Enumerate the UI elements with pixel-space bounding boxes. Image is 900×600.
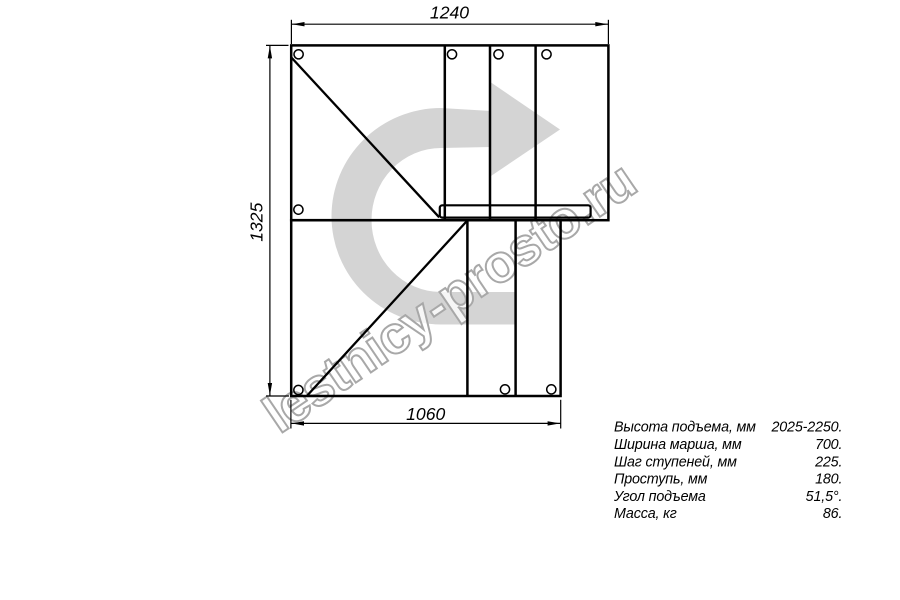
svg-text:2025-2250.: 2025-2250.	[770, 420, 842, 436]
svg-text:86.: 86.	[823, 506, 842, 522]
svg-text:1060: 1060	[406, 404, 445, 424]
svg-text:Проступь, мм: Проступь, мм	[614, 472, 708, 488]
svg-text:Масса, кг: Масса, кг	[614, 506, 677, 522]
svg-text:1325: 1325	[247, 202, 267, 241]
svg-text:225.: 225.	[814, 454, 842, 470]
svg-text:700.: 700.	[815, 437, 842, 453]
svg-text:Угол подъема: Угол подъема	[613, 489, 706, 505]
svg-text:180.: 180.	[815, 472, 842, 488]
svg-text:Высота подъема, мм: Высота подъема, мм	[614, 420, 756, 436]
svg-text:Ширина марша, мм: Ширина марша, мм	[614, 437, 742, 453]
svg-text:Шаг ступеней, мм: Шаг ступеней, мм	[614, 454, 737, 470]
svg-text:51,5°.: 51,5°.	[806, 489, 843, 505]
svg-text:1240: 1240	[430, 3, 469, 23]
